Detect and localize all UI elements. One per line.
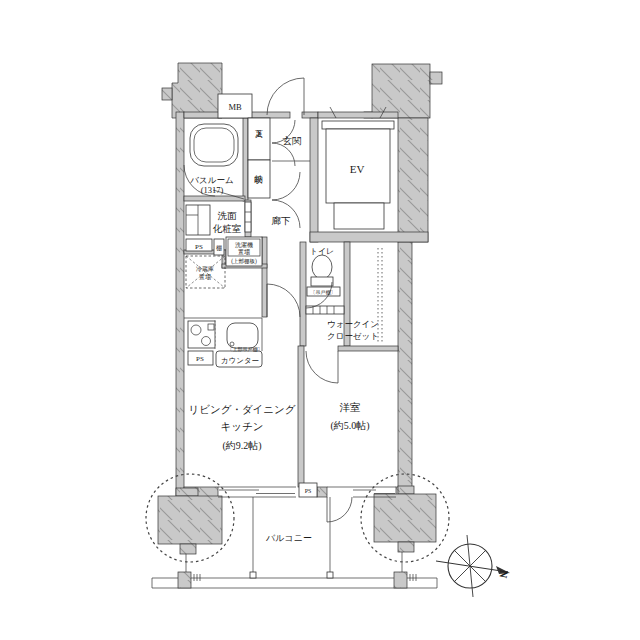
balcony-label: バルコニー: [265, 533, 312, 543]
wic-hanger-pipe: [378, 248, 382, 344]
counter-label: カウンター: [221, 356, 259, 365]
washroom-label-2: 化粧室: [213, 223, 242, 234]
ldk-label-1: リビング・ダイニング: [188, 404, 295, 415]
fixture-labels: PS 棚 洗濯機 置場 (上部棚板) 冷蔵庫 置場 PS カウンター 〔上部吊戸…: [195, 242, 311, 494]
elevator-label: EV: [350, 163, 365, 175]
toilet-note-label: 〔吊戸棚〕: [311, 289, 336, 295]
compass-rose: N: [436, 535, 511, 597]
western-room-label: 洋室: [340, 402, 361, 413]
laundry-label-2: 置場: [238, 248, 250, 256]
bathtub: [190, 124, 238, 166]
kitchen-sink: [227, 323, 258, 348]
ps-label-3: PS: [305, 488, 312, 494]
laundry-note-label: (上部棚板): [231, 258, 257, 265]
toilet-fixture: [311, 255, 333, 286]
shoe-cabinet-box: [248, 118, 270, 160]
fridge-space: [186, 256, 225, 288]
meter-box-label: MB: [228, 102, 242, 112]
ldk-label-2: キッチン: [221, 421, 264, 432]
stove: [188, 321, 215, 348]
western-room-size-label: (約5.0帖): [330, 420, 369, 432]
entrance-label: 玄関: [283, 136, 302, 146]
washroom-label-1: 洗面: [218, 211, 238, 221]
laundry-label-1: 洗濯機: [235, 242, 253, 249]
bathroom-size-label: (1317): [201, 185, 224, 195]
floorplan-page: N MB 玄関 下足入 収納 バスルーム (1317) EV 洗面 化粧室 廊下…: [0, 0, 640, 640]
washroom-door: [245, 202, 251, 232]
compass-north-label: N: [497, 569, 510, 579]
counter-note-label: 〔上部吊戸棚〕: [228, 346, 263, 353]
floorplan-drawing: N MB 玄関 下足入 収納 バスルーム (1317) EV 洗面 化粧室 廊下…: [0, 0, 640, 640]
ps-label-2: PS: [196, 355, 204, 363]
shelf-label: 棚: [216, 245, 222, 251]
toilet-label: トイレ: [310, 247, 335, 256]
fridge-label-1: 冷蔵庫: [196, 265, 214, 272]
railing-hatch-ticks: [194, 574, 416, 581]
vanity-unit: [186, 205, 210, 235]
fridge-label-2: 置場: [199, 273, 211, 281]
wic-label-2: クローゼット: [327, 331, 379, 341]
hallway-label: 廊下: [272, 215, 292, 226]
room-labels: MB 玄関 下足入 収納 バスルーム (1317) EV 洗面 化粧室 廊下 ト…: [188, 102, 379, 543]
bathroom-label: バスルーム: [189, 175, 233, 185]
ps-label-1: PS: [195, 243, 203, 251]
ldk-size-label: (約9.2帖): [222, 440, 261, 452]
storage-box: [248, 160, 270, 198]
wic-label-1: ウォークイン: [327, 319, 379, 329]
